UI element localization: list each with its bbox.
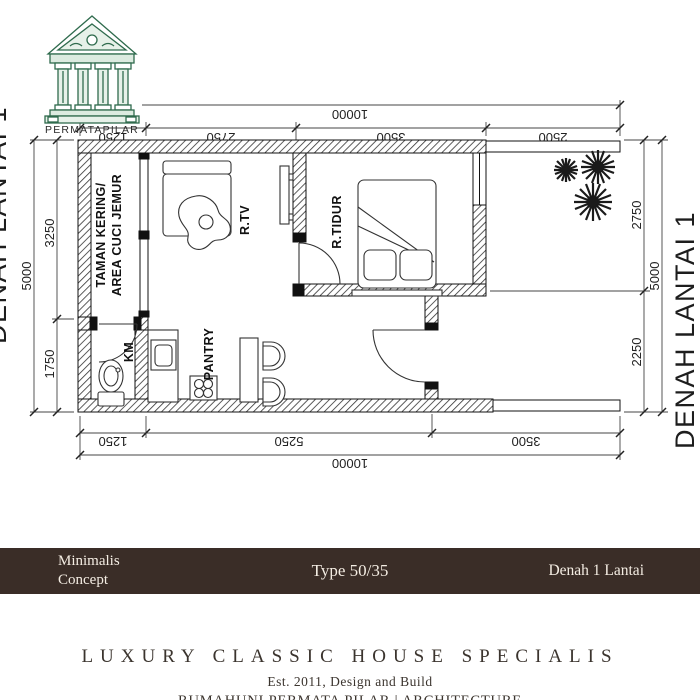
plants xyxy=(554,150,615,221)
sofa-throw-detail xyxy=(199,215,213,229)
dim-bottom-5250: 5250 xyxy=(275,434,304,449)
logo-step2 xyxy=(45,116,139,123)
sofa-back xyxy=(163,161,231,174)
label-rtidur: R.TIDUR xyxy=(330,195,344,249)
wall-top xyxy=(78,140,486,153)
wall-cap xyxy=(90,317,97,330)
wall-cap xyxy=(293,233,306,242)
wall-km-right xyxy=(135,330,148,399)
band-denah-text: Denah 1 Lantai xyxy=(548,562,644,580)
footer-subtitle: Est. 2011, Design and Build xyxy=(0,674,700,690)
side-title: DENAH LANTAI 1 xyxy=(670,211,700,449)
wall-right xyxy=(473,205,486,284)
divider-cap xyxy=(139,311,149,317)
wall-left xyxy=(78,153,91,412)
dim-bottom-overall: 10000 xyxy=(332,456,368,471)
poster: 1250 2750 3500 2500 10000 1250 5250 3500… xyxy=(0,0,700,700)
dim-right-overall: 5000 xyxy=(647,262,662,291)
bed-headboard xyxy=(352,290,442,296)
tv-bracket xyxy=(289,214,293,220)
side-title-cropped: DENAH LANTAI 1 xyxy=(0,106,12,344)
entry-door-swing xyxy=(373,330,425,382)
label-rtv: R.TV xyxy=(238,205,252,235)
floor-plan-drawing: 1250 2750 3500 2500 10000 1250 5250 3500… xyxy=(0,0,700,548)
divider-cap xyxy=(139,231,149,239)
footer-title: LUXURY CLASSIC HOUSE SPECIALIS xyxy=(0,646,700,668)
pillow xyxy=(400,250,432,280)
dim-left-overall: 5000 xyxy=(19,262,34,291)
dim-right-2750: 2750 xyxy=(629,201,644,230)
divider-cap xyxy=(139,153,149,159)
wall-cap xyxy=(425,382,438,389)
logo-medallion xyxy=(87,35,97,45)
bar-counter xyxy=(240,338,258,402)
label-garden-line2: AREA CUCI JEMUR xyxy=(110,174,124,296)
stool-inner xyxy=(263,382,280,402)
plant-icon xyxy=(574,183,612,221)
terrace-edge-top xyxy=(486,141,620,152)
label-pantry: PANTRY xyxy=(202,328,216,381)
toilet-flush-button xyxy=(116,368,120,372)
sink-basin xyxy=(155,345,172,366)
wall-cap xyxy=(293,284,304,296)
dim-bottom-1250: 1250 xyxy=(99,434,128,449)
terrace-edge-bottom xyxy=(493,400,620,411)
logo-brand-text: PERMATAPILAR xyxy=(45,124,139,136)
dim-bottom-3500: 3500 xyxy=(512,434,541,449)
wall-bottom xyxy=(78,399,493,412)
wall-tv xyxy=(293,153,306,233)
logo-step-detail xyxy=(126,117,136,122)
plant-icon xyxy=(554,158,578,182)
tv xyxy=(280,166,289,224)
toilet-tank xyxy=(98,392,124,406)
stool-inner xyxy=(263,346,280,366)
dim-top-overall: 10000 xyxy=(332,107,368,122)
info-band: Minimalis Concept Type 50/35 Denah 1 Lan… xyxy=(0,548,700,594)
wall-cap xyxy=(425,323,438,330)
footer: LUXURY CLASSIC HOUSE SPECIALIS Est. 2011… xyxy=(0,594,700,700)
logo-step-detail xyxy=(48,117,58,122)
label-km: KM xyxy=(122,342,136,362)
pillow xyxy=(364,250,396,280)
tv-bracket xyxy=(289,174,293,180)
plant-icon xyxy=(581,150,615,184)
logo-step1 xyxy=(50,110,134,116)
dim-left-1750: 1750 xyxy=(42,350,57,379)
logo-entablature xyxy=(50,54,134,63)
label-garden-line1: TAMAN KERING/ xyxy=(94,182,108,287)
dim-right-2250: 2250 xyxy=(629,338,644,367)
dim-left-3250: 3250 xyxy=(42,219,57,248)
footer-brand-line: RUMAHUNI PERMATA PILAR | ARCHITECTURE xyxy=(0,693,700,700)
